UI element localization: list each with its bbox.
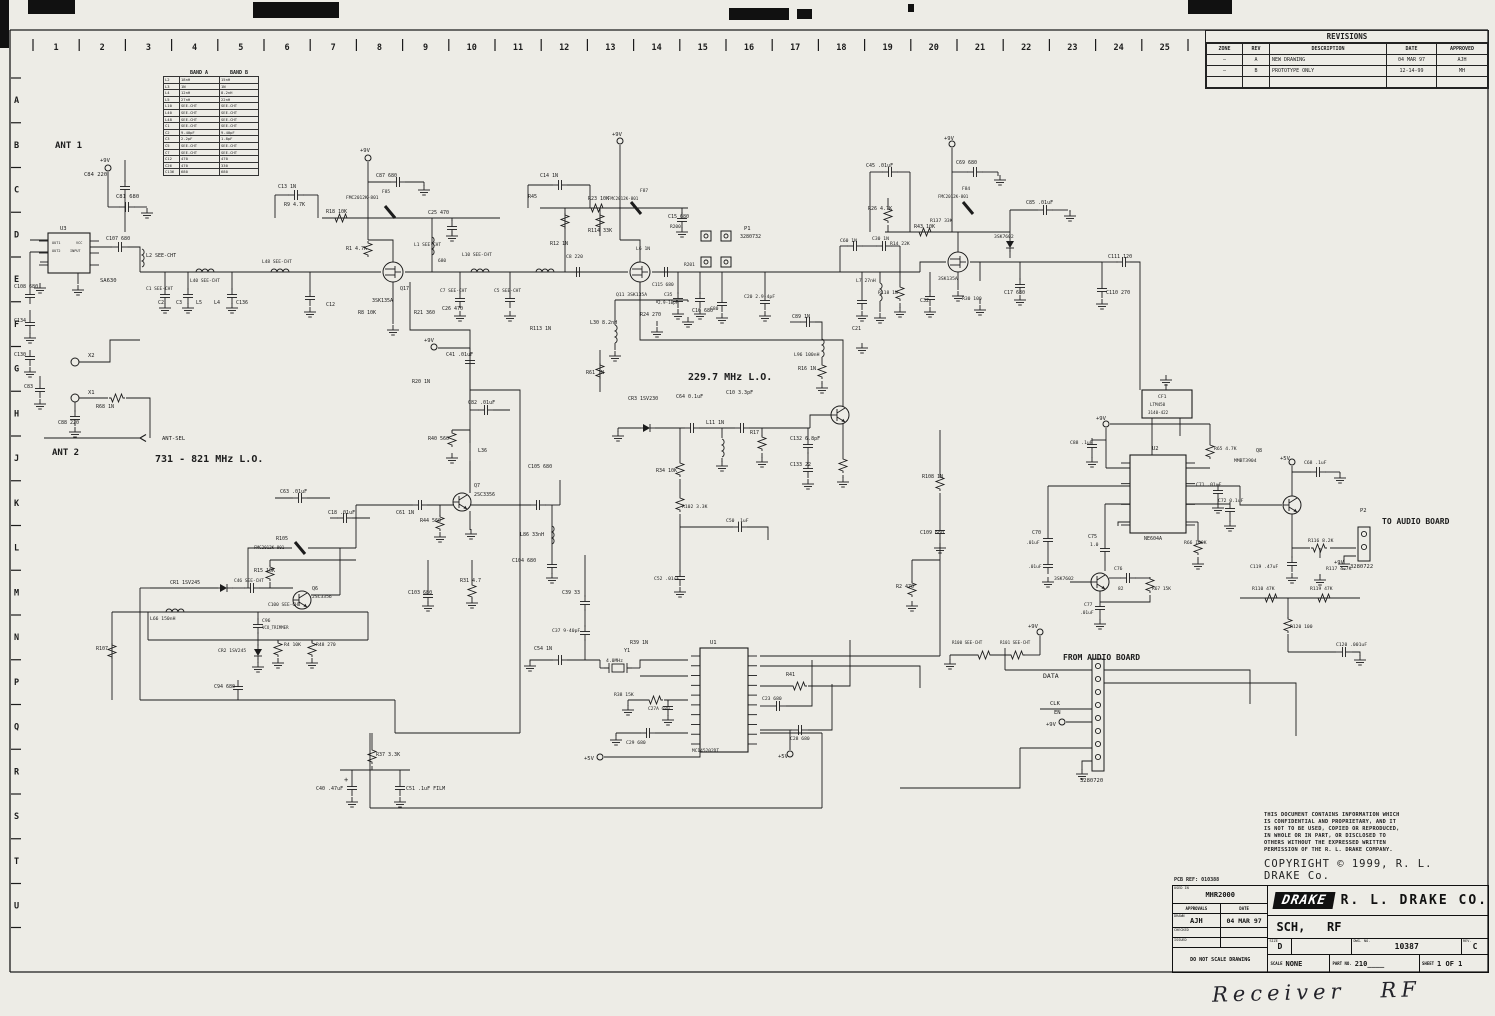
component-label: P2 (1360, 508, 1367, 514)
band-cell: SEE-CHT (220, 103, 259, 110)
component-label: Q7 (474, 483, 480, 489)
component-label: C52 .01uF (654, 576, 680, 582)
gnd-symbol (994, 175, 1006, 185)
component-label: R105 (276, 536, 288, 542)
grid-row-letter: S (14, 812, 19, 822)
grid-row-letter: A (14, 96, 19, 106)
resv-symbol (561, 213, 569, 229)
wire (786, 660, 812, 706)
band-cell: 22nH (220, 96, 259, 103)
grid-row-letter: H (14, 409, 19, 419)
fbead-symbol (385, 206, 395, 218)
drawn-label: DRAWN (1174, 914, 1185, 918)
band-cell: C7 (164, 149, 180, 156)
component-label: R2 470 (896, 584, 914, 590)
component-label: 680 (438, 258, 446, 264)
component-label: L66 150nH (150, 616, 176, 622)
component-label: C41 .01uF (446, 352, 473, 358)
component-label: R68 1N (96, 404, 114, 410)
wire (604, 752, 700, 757)
band-cell: 680 (220, 169, 259, 176)
wire (1082, 761, 1092, 770)
band-cell: 18nH (180, 77, 220, 84)
component-label: L86 33nH (520, 532, 544, 538)
grid-column-number: 7 (331, 43, 336, 53)
band-cell: C3 (164, 136, 180, 143)
caph-symbol (792, 725, 808, 735)
wire (128, 247, 140, 272)
component-label: + (344, 776, 348, 784)
band-b-header: BAND B (219, 70, 259, 76)
component-label: C27A 680 (648, 706, 670, 712)
wire (1104, 683, 1296, 736)
gnd-symbol (1212, 503, 1224, 513)
component-label: R1 4.7K (346, 246, 367, 252)
component-label: R16 1N (798, 366, 816, 372)
title-block: USED IN MHR2000 APPROVALS DATE DRAWN AJH… (1172, 885, 1489, 973)
grid-row-letter: U (14, 902, 19, 912)
term-symbol (105, 165, 111, 171)
grid-row-letter: B (14, 141, 19, 151)
component-label: 3SK7602 (1054, 576, 1074, 582)
capv-symbol (1043, 558, 1053, 574)
sheet-label: SHEET (1422, 961, 1434, 966)
component-label: R61 1N (586, 370, 604, 376)
resv-symbol (676, 461, 684, 477)
gnd-symbol (1042, 577, 1054, 587)
gnd-symbol (24, 367, 36, 377)
wire (747, 527, 768, 540)
component-label: MMBT3904 (1234, 458, 1257, 464)
component-label: VCO_TRIMMER (262, 625, 289, 630)
component-label: C14 1N (540, 173, 558, 179)
component-label: C104 680 (512, 558, 536, 564)
gnd-symbol (802, 479, 814, 489)
band-cell: C1 (164, 123, 180, 130)
component-label: 3280720 (1080, 778, 1103, 784)
wire (1344, 556, 1356, 560)
sqpin-symbol (721, 231, 731, 241)
component-label: C61 1N (396, 510, 414, 516)
grid-column-number: 10 (467, 43, 477, 53)
component-label: Q11 3SK135A (616, 292, 647, 298)
approvals-label: APPROVALS (1173, 904, 1220, 913)
component-label: +9V (944, 136, 955, 142)
capv-symbol (25, 316, 35, 332)
component-label: C110 270 (1106, 290, 1130, 296)
band-a-header: BAND A (179, 70, 219, 76)
wire (1352, 652, 1360, 656)
band-cell: 1.8pF (220, 136, 259, 143)
component-label: 3280732 (740, 234, 761, 240)
diodeh-symbol (638, 424, 656, 432)
component-label: R119 47K (1310, 586, 1333, 592)
band-cell: 1N (180, 83, 220, 90)
sqpin-symbol (701, 231, 711, 241)
band-cell: 1N (220, 83, 259, 90)
revisions-header-cell: REV (1243, 44, 1270, 55)
component-label: C63 .01uF (280, 489, 307, 495)
gnd-symbol (1354, 655, 1366, 665)
caph-symbol (552, 655, 568, 665)
component-label: L40 SEE-CHT (190, 278, 220, 284)
component-label: C132 6.8pF (790, 436, 820, 442)
copyright-block: THIS DOCUMENT CONTAINS INFORMATION WHICH… (1264, 812, 1474, 882)
capv-symbol (25, 350, 35, 366)
grid-row-letter: P (14, 678, 19, 688)
component-label: C105 680 (528, 464, 552, 470)
component-label: C115 680 (652, 282, 674, 288)
component-label: C37 9-40pF (552, 628, 580, 634)
component-label: +9V (612, 132, 623, 138)
gnd-symbol (434, 532, 446, 542)
component-label: ANT 1 (55, 141, 82, 151)
component-label: Q8 (1256, 448, 1262, 454)
gnd-symbol (141, 208, 153, 218)
band-cell: SEE-CHT (180, 123, 220, 130)
band-cell: C12 (164, 156, 180, 163)
grid-column-number: 5 (238, 43, 243, 53)
component-label: C83 (24, 384, 33, 390)
band-cell: 470 (220, 156, 259, 163)
scale-label: SCALE (1270, 961, 1282, 966)
grid-column-number: 22 (1021, 43, 1031, 53)
band-cell: C5 (164, 142, 180, 149)
band-cell: SEE-CHT (220, 142, 259, 149)
capv-symbol (695, 292, 705, 308)
component-label: R67 15K (1152, 586, 1171, 592)
gnd-symbol (304, 307, 316, 317)
grid-row-letter: L (14, 544, 19, 554)
component-label: C1 SEE-CHT (146, 286, 173, 292)
band-cell: 12nH (180, 90, 220, 97)
gnd-symbol (394, 797, 406, 807)
rev-label: REV. (1463, 939, 1471, 943)
gnd-symbol (756, 457, 768, 467)
gnd-symbol (856, 311, 868, 321)
grid-column-number: 15 (698, 43, 708, 53)
component-label: +5V (1280, 456, 1291, 462)
band-cell: C26 (164, 162, 180, 169)
component-label: C68 .1uF (1304, 460, 1327, 466)
grid-row-letter: D (14, 230, 19, 240)
component-label: C111 120 (1108, 254, 1132, 260)
caph-symbol (288, 190, 304, 200)
grid-column-number: 8 (377, 43, 382, 53)
revisions-cell: — (1207, 55, 1243, 66)
indv-symbol (722, 439, 724, 457)
component-label: U2 (1152, 446, 1159, 452)
grid-column-number: 3 (146, 43, 151, 53)
component-label: C80 (710, 306, 719, 312)
component-label: R15 10K (254, 568, 275, 574)
resv-symbol (596, 213, 604, 229)
capv-symbol (580, 595, 590, 611)
component-label: L7 27nH (856, 278, 876, 284)
gnd-symbol (24, 333, 36, 343)
drawing-title: SCH, RF (1268, 920, 1341, 934)
term-symbol (1059, 719, 1065, 725)
component-label: C71 .01uF (1196, 482, 1222, 488)
component-label: C100 SEE-CHT (268, 602, 301, 608)
caph-symbol (244, 583, 260, 593)
band-cell: L48 (164, 116, 180, 123)
gnd-symbol (1192, 559, 1204, 569)
gnd-symbol (346, 797, 358, 807)
component-label: +9V (100, 158, 111, 164)
revisions-cell (1387, 77, 1437, 88)
resv-symbol (108, 643, 116, 659)
gnd-symbol (651, 327, 663, 337)
component-label: C69 680 (956, 160, 977, 166)
component-label: .01uF (1080, 610, 1094, 616)
component-label: C75 (1088, 534, 1097, 540)
component-label: C15 680 (668, 214, 689, 220)
grid-row-letter: R (14, 767, 20, 777)
component-label: C89 1N (792, 314, 810, 320)
component-label: VCC (76, 241, 82, 245)
gnd-symbol (1334, 473, 1346, 483)
component-label: R20 1N (412, 379, 430, 385)
wire (900, 748, 1020, 788)
resv-symbol (818, 363, 826, 379)
component-label: R117 4.7K (1326, 566, 1352, 572)
resv-symbol (308, 641, 316, 657)
component-label: C72 0.1uF (1218, 498, 1244, 504)
capv-symbol (35, 382, 45, 398)
component-label: F85 (382, 189, 390, 195)
resh-symbol (589, 204, 605, 212)
connv-symbol (1092, 659, 1104, 771)
capv-symbol (1043, 532, 1053, 548)
gnd-symbol (622, 705, 634, 715)
component-label: R40 560 (428, 436, 449, 442)
gnd-symbol (504, 311, 516, 321)
capv-symbol (25, 288, 35, 304)
mixer-symbol (630, 262, 650, 282)
wire (1100, 595, 1150, 602)
component-label: .01uF (1026, 540, 1040, 546)
gnd-symbol (465, 529, 477, 539)
resh-symbol (1311, 544, 1327, 552)
component-label: C26 470 (442, 306, 463, 312)
no-scale-note: DO NOT SCALE DRAWING (1173, 948, 1267, 972)
term-symbol (71, 358, 79, 366)
component-label: R137 33K (930, 218, 953, 224)
gnd-symbol (759, 311, 771, 321)
gnd-symbol (672, 309, 684, 319)
arrow-symbol (140, 435, 146, 442)
fbead-symbol (963, 202, 973, 214)
connv-symbol (1358, 527, 1370, 561)
resh-symbol (1263, 594, 1279, 602)
resv-symbol (448, 431, 456, 447)
component-label: DATA (1043, 672, 1059, 680)
gnd-symbol (72, 285, 84, 295)
gnd-symbol (1086, 457, 1098, 467)
component-label: C84 220 (84, 172, 107, 178)
gnd-symbol (546, 573, 558, 583)
term-symbol (617, 138, 623, 144)
component-label: 3SK135A (938, 276, 958, 282)
gnd-symbol (524, 661, 536, 671)
component-label: FMC2012K-801 (608, 196, 639, 201)
pcb-ref: PCB REF: 010388 (1174, 877, 1219, 883)
component-label: R31 4.7 (460, 578, 481, 584)
component-label: R101 SEE-CHT (1000, 640, 1031, 645)
grid-column-number: 1 (53, 43, 58, 53)
component-label: C7 SEE-CHT (440, 288, 467, 294)
term-symbol (71, 394, 79, 402)
part-no-label: PART NO. (1332, 961, 1351, 966)
component-label: R4 10K (284, 642, 301, 648)
component-label: CR3 1SV230 (628, 396, 658, 402)
component-label: C107 680 (106, 236, 130, 242)
component-label: C32 (920, 298, 929, 304)
component-label: R200 (670, 224, 681, 230)
band-cell: C2 (164, 129, 180, 136)
component-label: C20 2.9-4pF (744, 294, 775, 300)
component-label: C17 680 (1004, 290, 1025, 296)
component-label: R110 47K (1252, 586, 1275, 592)
term-symbol (431, 344, 437, 350)
gnd-symbol (894, 307, 906, 317)
grid-column-number: 6 (284, 43, 289, 53)
component-label: C87 680 (376, 173, 397, 179)
revisions-header-cell: DESCRIPTION (1270, 44, 1387, 55)
band-cell: SEE-CHT (180, 109, 220, 116)
resh-symbol (109, 394, 125, 402)
grid-row-letter: N (14, 633, 19, 643)
resh-symbol (1009, 651, 1025, 659)
component-label: C70 (1032, 530, 1041, 536)
caph-symbol (1310, 467, 1326, 477)
copyright-text-line: IN WHOLE OR IN PART, OR DISCLOSED TO (1264, 833, 1474, 840)
gnd-symbol (69, 427, 81, 437)
term-symbol (597, 754, 603, 760)
component-label: C82 .01uF (468, 400, 495, 406)
gnd-symbol (837, 477, 849, 487)
component-label: R114 33K (588, 228, 612, 234)
resv-symbol (468, 583, 476, 599)
npn-symbol (453, 493, 471, 511)
component-label: R48 270 (316, 642, 336, 648)
component-label: C5 SEE-CHT (494, 288, 521, 294)
wire (640, 660, 688, 668)
component-label: L5 (196, 300, 202, 306)
component-label: C81 680 (116, 194, 139, 200)
component-label: F84 (962, 186, 970, 192)
part-no: 210____ (1355, 960, 1385, 968)
resv-symbol (839, 457, 847, 473)
gnd-symbol (418, 185, 430, 195)
size-label: SIZE (1269, 939, 1277, 943)
component-label: R102 3.3K (682, 504, 708, 510)
wire (1104, 670, 1250, 704)
component-label: TO AUDIO BOARD (1382, 517, 1450, 526)
component-label: R21 360 (414, 310, 435, 316)
band-cell: 330 (220, 162, 259, 169)
component-label: R201 (684, 262, 695, 268)
band-cell: 9-40pF (180, 129, 220, 136)
band-cell: L3 (164, 83, 180, 90)
wire (530, 660, 536, 662)
component-label: MC145202DT (692, 748, 719, 754)
gnd-symbol (1096, 299, 1108, 309)
drawn-date: 04 MAR 97 (1221, 914, 1268, 927)
revisions-title: REVISIONS (1206, 31, 1488, 43)
band-cell: 470 (180, 156, 220, 163)
caph-symbol (640, 728, 656, 738)
component-label: 731 - 821 MHz L.O. (155, 454, 263, 465)
wire (1130, 262, 1140, 390)
resh-symbol (333, 214, 349, 222)
component-label: R26 4.7K (868, 206, 892, 212)
drake-logo: DRAKE (1273, 892, 1336, 909)
component-label: R116 8.2K (1308, 538, 1334, 544)
caph-symbol (684, 423, 700, 433)
grid-row-letter: K (14, 499, 20, 509)
wire (810, 415, 831, 428)
npn-symbol (1283, 496, 1301, 514)
component-label: L36 (478, 448, 487, 454)
revisions-cell: A (1243, 55, 1270, 66)
component-label: C88 220 (58, 420, 79, 426)
component-label: C94 680 (214, 684, 235, 690)
component-label: L4 (214, 300, 220, 306)
caph-symbol (1037, 205, 1053, 215)
grid-column-number: 24 (1113, 43, 1123, 53)
component-label: R120 100 (1290, 624, 1313, 630)
component-label: U1 (710, 640, 717, 646)
component-label: C88 .1uF (1070, 440, 1093, 446)
ic-symbol (39, 233, 99, 273)
component-label: C109 680 (920, 530, 944, 536)
issued-label: ISSUED (1174, 938, 1187, 942)
component-label: R18 10K (326, 209, 347, 215)
gnd-symbol (182, 303, 194, 313)
gnd-symbol (1224, 521, 1236, 531)
component-label: FMC2012K-801 (938, 194, 969, 199)
capv-symbol (717, 296, 727, 312)
gnd-symbol (610, 735, 622, 745)
gnd-symbol (974, 305, 986, 315)
caph-symbol (552, 180, 568, 190)
component-label: LTM450 (1150, 402, 1166, 407)
component-label: OUT1 (52, 241, 60, 245)
component-label: 82 (1118, 586, 1124, 592)
gnd-symbol (1014, 295, 1026, 305)
caph-symbol (112, 242, 128, 252)
component-label: +9V (1046, 722, 1057, 728)
gnd-symbol (674, 587, 686, 597)
copyright-line: COPYRIGHT © 1999, R. L. DRAKE Co. (1264, 858, 1474, 882)
grid-row-letter: J (14, 454, 19, 464)
component-label: P1 (744, 226, 751, 232)
copyright-text-line: IS CONFIDENTIAL AND PROPRIETARY, AND IT (1264, 819, 1474, 826)
component-label: +9V (1028, 624, 1039, 630)
gnd-symbol (609, 351, 621, 361)
component-label: C13 1N (278, 184, 296, 190)
band-cell: SEE-CHT (220, 109, 259, 116)
gnd-symbol (716, 461, 728, 471)
component-label: C21 (852, 326, 861, 332)
component-label: C51 .1uF FILM (406, 786, 445, 792)
component-label: C50 .1uF (726, 518, 749, 524)
component-label: CF1 (1158, 394, 1167, 400)
component-label: +9V (1334, 560, 1345, 566)
grid-column-number: 16 (744, 43, 754, 53)
